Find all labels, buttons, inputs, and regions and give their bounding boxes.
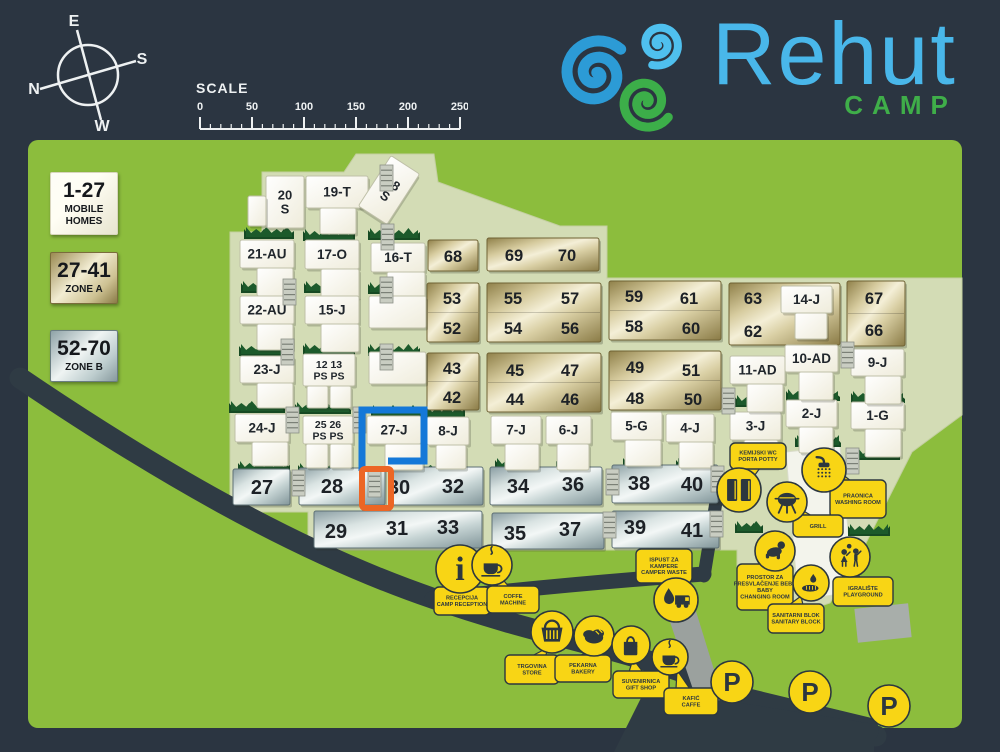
amenity-label: PLAYGROUND [843, 592, 882, 598]
potty-icon [717, 468, 761, 512]
amenity-label: ISPUST ZA [649, 557, 678, 563]
home-rect [321, 324, 359, 352]
amenity-label: PRESVLAČENJE BEBA [734, 581, 796, 588]
home-annex [557, 444, 591, 473]
parking-marker: P [789, 671, 831, 713]
plot-59[interactable]: 59 [625, 288, 643, 306]
plot-29[interactable]: 29 [325, 521, 347, 543]
svg-text:i: i [455, 551, 464, 588]
logo-spiral-icon [645, 28, 678, 66]
home-annex [320, 208, 358, 237]
logo-spirals-icon [556, 12, 706, 137]
home-annex [436, 445, 468, 472]
plot-10-AD[interactable]: 10-AD [785, 345, 840, 375]
plot-32[interactable]: 32 [442, 476, 464, 498]
plot-43[interactable]: 43 [443, 360, 461, 378]
home-rect [747, 384, 783, 412]
home-label: 4-J [680, 421, 700, 436]
parking-letter: P [723, 667, 740, 697]
plot-50[interactable]: 50 [684, 391, 702, 409]
scale-ruler: 050100150200250 [196, 98, 468, 134]
plot-27-J[interactable]: 27-J [367, 416, 423, 447]
plot-38[interactable]: 38 [628, 473, 650, 495]
home-label: 7-J [506, 423, 526, 438]
amenity-label: CAFFE [682, 702, 701, 708]
scale-label: SCALE [196, 80, 476, 96]
scale-tick-label: 250 [451, 101, 468, 113]
plot-40[interactable]: 40 [681, 474, 703, 496]
home-label: 22-AU [247, 303, 286, 318]
home-rect [257, 383, 293, 408]
amenity-label: KAMPERE [650, 564, 678, 570]
compass-letter-n: N [28, 81, 40, 98]
home-annex [865, 429, 903, 460]
plot-block: 3941 [612, 511, 721, 551]
home-label: 12 13 [316, 359, 342, 371]
reception-glyph: i [455, 551, 464, 588]
home-rect [625, 440, 661, 466]
plot-55[interactable]: 55 [504, 290, 522, 308]
plot-45[interactable]: 45 [506, 362, 524, 380]
plot-27[interactable]: 27 [251, 477, 273, 499]
plot-35[interactable]: 35 [504, 523, 526, 545]
plot-53[interactable]: 53 [443, 290, 461, 308]
home-annex [252, 442, 290, 469]
parking-letter: P [880, 691, 897, 721]
home-rect [306, 444, 328, 468]
plot-25-26[interactable]: 25 26PS PS [303, 416, 355, 447]
plot-57[interactable]: 57 [561, 290, 579, 308]
steps-icon [722, 388, 735, 414]
compass-line-ns [40, 61, 136, 89]
home-annex [505, 444, 541, 473]
kids-icon [830, 537, 870, 577]
plot-31[interactable]: 31 [386, 518, 408, 540]
home-label: 19-T [323, 185, 352, 200]
home-label: PS PS [313, 430, 344, 442]
home-label: S [281, 202, 290, 217]
amenity-label: CAMPER WASTE [641, 570, 687, 576]
plot-block: 3840 [612, 465, 720, 506]
home-rect [436, 445, 466, 469]
plot-41[interactable]: 41 [681, 520, 703, 542]
legend-label: ZONE A [55, 284, 113, 296]
home-label: 5-G [625, 419, 648, 434]
legend-label: MOBILE HOMES [55, 204, 113, 227]
steps-icon [281, 339, 294, 365]
plot-36[interactable]: 36 [562, 474, 584, 496]
plot-69[interactable]: 69 [505, 247, 523, 265]
plot-5-G[interactable]: 5-G [611, 412, 664, 443]
scale-tick-label: 200 [399, 101, 417, 113]
steps-icon [380, 344, 393, 370]
plot-2-J[interactable]: 2-J [786, 400, 839, 430]
home-annex [679, 442, 715, 471]
home-annex [321, 324, 361, 355]
home-rect [248, 196, 266, 226]
home-annex [369, 352, 428, 387]
home-rect [679, 442, 713, 468]
home-rect [385, 444, 423, 470]
home-rect [505, 444, 539, 470]
amenity-label: KAFIĆ [682, 694, 699, 702]
home-annex [865, 376, 903, 407]
steps-icon [381, 224, 394, 250]
home-annex [248, 196, 268, 229]
compass-letter-w: W [94, 118, 110, 135]
home-label: 17-O [317, 247, 347, 262]
scale-tick-label: 50 [246, 101, 258, 113]
amenity-label: SUVENIRNICA [622, 679, 661, 685]
plot-56[interactable]: 56 [561, 320, 579, 338]
plot-14-J[interactable]: 14-J [781, 286, 834, 316]
home-rect [330, 386, 351, 408]
scale-tick-label: 100 [295, 101, 313, 113]
home-rect [795, 313, 827, 339]
plot-6-J[interactable]: 6-J [546, 416, 593, 447]
plot-24-J[interactable]: 24-J [235, 414, 291, 445]
plot-49[interactable]: 49 [626, 359, 644, 377]
plot-39[interactable]: 39 [624, 517, 646, 539]
steps-icon [380, 165, 393, 191]
home-label: PS PS [314, 370, 345, 382]
plot-47[interactable]: 47 [561, 362, 579, 380]
plot-4-J[interactable]: 4-J [666, 414, 716, 445]
plot-20[interactable]: 20S [266, 176, 306, 231]
plot-block: 59615860 [609, 281, 723, 343]
plot-7-J[interactable]: 7-J [491, 416, 543, 447]
plot-46[interactable]: 46 [561, 391, 579, 409]
amenity-label: PRAONICA [843, 494, 873, 500]
home-annex [747, 384, 785, 415]
home-rect [369, 352, 426, 384]
home-annex [307, 386, 330, 411]
plot-block: 55575456 [487, 283, 603, 345]
legend-mobile-homes: 1-27 MOBILE HOMES [50, 172, 118, 235]
home-annex [330, 386, 353, 411]
home-rect [321, 269, 359, 298]
home-label: 3-J [746, 419, 766, 434]
logo: Rehut CAMP [556, 12, 957, 137]
scale-tick-label: 0 [197, 101, 203, 113]
steps-icon [846, 448, 859, 474]
plot-52[interactable]: 52 [443, 320, 461, 338]
home-label: 21-AU [247, 247, 286, 262]
shower-icon [802, 448, 846, 492]
amenity-label: KEMIJSKI WC [739, 451, 776, 457]
plot-42[interactable]: 42 [443, 389, 461, 407]
home-label: 11-AD [738, 363, 777, 378]
compass-rose: E S W N [14, 4, 164, 139]
steps-icon [292, 470, 305, 496]
plot-54[interactable]: 54 [504, 320, 523, 338]
plot-block: 45474446 [487, 353, 603, 415]
legend-range: 52-70 [51, 338, 117, 359]
amenity-label: RECEPCIJA [446, 596, 478, 602]
plot-60[interactable]: 60 [682, 320, 700, 338]
home-rect [799, 372, 833, 400]
home-label: 16-T [384, 250, 413, 265]
plot-block: 5352 [427, 283, 481, 345]
camp-map-frame: 2728303234363840293133353739416869705352… [0, 0, 1000, 752]
plot-block: 27 [233, 469, 292, 508]
plot-block: 3032 [388, 467, 485, 508]
plot-48[interactable]: 48 [626, 390, 644, 408]
home-rect [307, 386, 328, 408]
amenity-label: PEKARNA [569, 663, 597, 669]
home-label: 24-J [248, 421, 275, 436]
plot-37[interactable]: 37 [559, 519, 581, 541]
plot-68[interactable]: 68 [444, 248, 462, 266]
logo-title: Rehut [712, 12, 957, 96]
home-label: 8-J [438, 424, 458, 439]
plot-block: 6766 [847, 281, 907, 349]
plot-58[interactable]: 58 [625, 318, 643, 336]
amenity-label: CHANGING ROOM [740, 594, 790, 600]
plot-44[interactable]: 44 [506, 391, 525, 409]
amenity-label: MACHINE [500, 600, 526, 606]
home-label: 23-J [253, 362, 280, 377]
plot-block: 3537 [492, 513, 606, 552]
amenity-label: PROSTOR ZA [747, 575, 784, 581]
amenity-label: COFFE [504, 594, 523, 600]
steps-icon [283, 279, 296, 305]
plot-12-13[interactable]: 12 13PS PS [303, 354, 357, 389]
amenity-label: IGRALIŠTE [848, 584, 878, 592]
home-annex [625, 440, 663, 469]
plot-block-rect [487, 238, 599, 271]
home-label: 2-J [802, 406, 822, 421]
plot-block: 3436 [490, 467, 604, 508]
plot-16-T[interactable]: 16-T [371, 243, 427, 275]
plot-block: 4342 [427, 353, 481, 413]
plot-66[interactable]: 66 [865, 322, 883, 340]
home-label: 27-J [380, 423, 407, 438]
plot-15-J[interactable]: 15-J [305, 296, 361, 327]
plot-62[interactable]: 62 [744, 323, 762, 341]
amenity-label: BAKERY [571, 669, 595, 675]
home-rect [865, 429, 901, 457]
home-label: 6-J [559, 423, 579, 438]
handwash-icon [793, 565, 829, 601]
parking-letter: P [801, 677, 818, 707]
home-rect [369, 296, 426, 328]
home-label: 1-G [866, 408, 889, 423]
home-rect [252, 442, 288, 466]
legend-zone-b: 52-70 ZONE B [50, 330, 118, 382]
plot-61[interactable]: 61 [680, 290, 698, 308]
compass-letter-e: E [69, 13, 80, 30]
plot-33[interactable]: 33 [437, 517, 459, 539]
home-label: 20 [278, 187, 292, 202]
plot-block: 49514850 [609, 351, 723, 413]
plot-8-J[interactable]: 8-J [427, 417, 471, 448]
home-label: 15-J [318, 303, 345, 318]
plot-3-J[interactable]: 3-J [730, 412, 783, 443]
home-annex [369, 296, 428, 331]
steps-icon [603, 512, 616, 538]
plot-51[interactable]: 51 [682, 362, 700, 380]
home-label: 9-J [868, 355, 888, 370]
steps-icon [841, 342, 854, 368]
amenity-label: CAMP RECEPTION [437, 602, 488, 608]
home-annex [306, 444, 330, 471]
steps-icon [710, 511, 723, 537]
amenity-label: GRILL [810, 524, 827, 530]
gravel-pad [854, 603, 911, 642]
compass-letter-s: S [137, 51, 148, 68]
plot-34[interactable]: 34 [507, 476, 530, 498]
logo-spiral-icon [567, 41, 621, 99]
plot-70[interactable]: 70 [558, 247, 576, 265]
amenity-label: PORTA POTTY [738, 457, 777, 463]
amenity-label: GIFT SHOP [626, 685, 656, 691]
plot-28[interactable]: 28 [321, 476, 343, 498]
logo-spiral-icon [624, 83, 668, 127]
amenity-label: TRGOVINA [517, 664, 547, 670]
parking-marker: P [868, 685, 910, 727]
home-rect [865, 376, 901, 404]
legend-label: ZONE B [55, 362, 113, 374]
plot-9-J[interactable]: 9-J [851, 349, 906, 379]
plot-11-AD[interactable]: 11-AD [730, 356, 787, 387]
legend-range: 27-41 [51, 260, 117, 281]
home-annex [330, 444, 354, 471]
home-rect [330, 444, 352, 468]
plot-block: 68 [428, 240, 480, 274]
legend-range: 1-27 [51, 180, 117, 201]
home-rect [320, 208, 356, 234]
steps-icon [606, 469, 619, 495]
amenity-label: WASHING ROOM [835, 500, 881, 506]
home-rect [557, 444, 589, 470]
parking-marker: P [711, 661, 753, 703]
home-annex [799, 372, 835, 403]
steps-icon [368, 471, 381, 497]
plot-67[interactable]: 67 [865, 290, 883, 308]
steps-icon [380, 277, 393, 303]
plot-17-O[interactable]: 17-O [305, 240, 361, 272]
scale-tick-label: 150 [347, 101, 365, 113]
home-annex [257, 383, 295, 411]
amenity-label: BABY [757, 588, 773, 594]
home-annex [795, 313, 829, 342]
plot-63[interactable]: 63 [744, 290, 762, 308]
steps-icon [286, 407, 299, 433]
amenity-label: SANITARNI BLOK [772, 613, 819, 619]
home-label: 14-J [793, 292, 820, 307]
amenity-label: SANITARY BLOCK [771, 619, 820, 625]
plot-block: 6970 [487, 238, 601, 274]
plot-21-AU[interactable]: 21-AU [240, 240, 296, 271]
amenity-label: STORE [522, 670, 541, 676]
legend-zone-a: 27-41 ZONE A [50, 252, 118, 304]
scale-bar: SCALE 050100150200250 [196, 80, 476, 139]
home-label: 25 26 [315, 419, 341, 431]
home-label: 10-AD [792, 351, 831, 366]
